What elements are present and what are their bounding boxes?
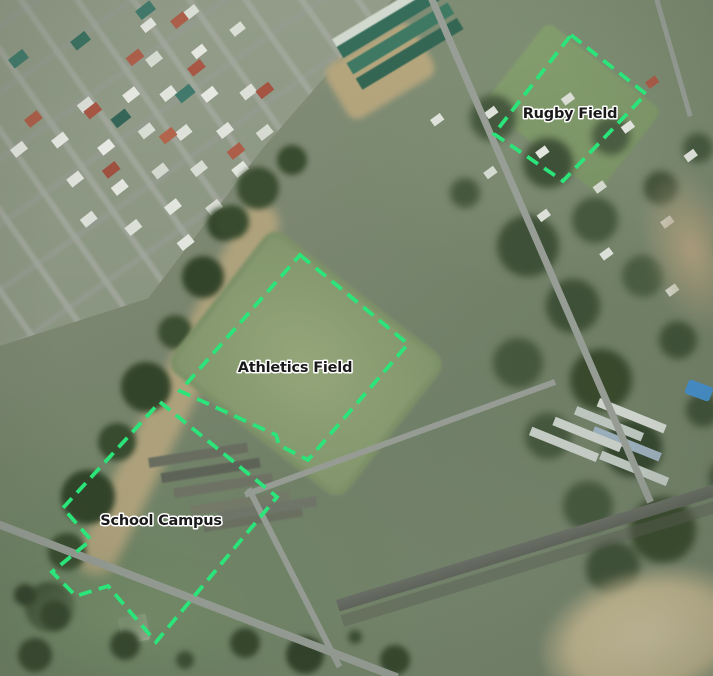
map-canvas[interactable]: Rugby Field Athletics Field School Campu… (0, 0, 713, 676)
athletics-field-polygon[interactable] (180, 255, 408, 460)
athletics-field-label: Athletics Field (238, 360, 353, 376)
vector-feature-overlay: Rugby Field Athletics Field School Campu… (0, 0, 713, 676)
rugby-field-label: Rugby Field (523, 106, 618, 122)
school-campus-label: School Campus (100, 513, 222, 529)
